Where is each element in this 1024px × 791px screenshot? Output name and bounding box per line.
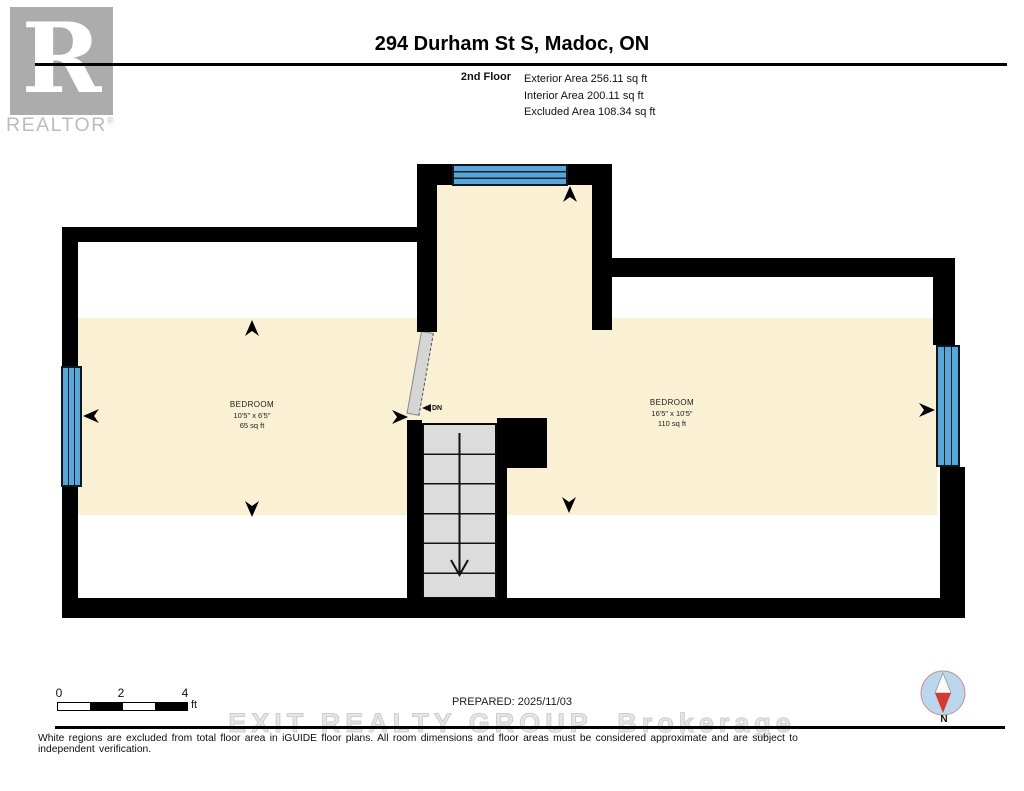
compass-north-label: N	[936, 714, 952, 725]
wall-right-room-top	[608, 258, 950, 277]
wall-left-upper	[62, 242, 78, 367]
wall-right-lower	[940, 467, 965, 598]
arrow-up-left-room	[245, 320, 259, 336]
footer-divider-line	[55, 726, 1005, 729]
wall-left-lower	[62, 487, 78, 598]
window-right	[936, 345, 960, 467]
window-top	[452, 164, 568, 186]
stair-direction-label: DN	[422, 404, 442, 412]
prepared-date: PREPARED: 2025/11/03	[0, 696, 1024, 708]
disclaimer-text: White regions are excluded from total fl…	[38, 733, 823, 755]
room-name: BEDROOM	[602, 398, 742, 409]
room-area: 65 sq ft	[182, 421, 322, 432]
floorplan-sheet: R REALTOR® 294 Durham St S, Madoc, ON 2n…	[0, 0, 1024, 791]
arrow-up-hall	[563, 186, 577, 202]
wall-stair-right	[497, 418, 507, 598]
room-name: BEDROOM	[182, 400, 322, 411]
wall-bottom	[62, 598, 965, 618]
wall-right-upper	[933, 258, 955, 345]
room-label-bedroom-left: BEDROOM 10'5" x 6'5" 65 sq ft	[182, 400, 322, 432]
room-area: 110 sq ft	[602, 419, 742, 430]
room-dimensions: 16'5" x 10'5"	[602, 409, 742, 420]
arrow-left-left-room	[83, 409, 99, 423]
floorplan-drawing: DN BEDROOM 10'5" x 6'5" 65 sq ft	[0, 0, 1024, 791]
wall-left-room-top	[62, 227, 437, 242]
included-area-hall	[437, 185, 593, 331]
arrow-down-left-room	[245, 501, 259, 517]
arrow-down-right-room	[562, 497, 576, 513]
wall-hall-left	[417, 164, 437, 332]
arrow-right-left-room	[392, 410, 408, 424]
room-label-bedroom-right: BEDROOM 16'5" x 10'5" 110 sq ft	[602, 398, 742, 430]
window-left	[61, 366, 82, 487]
dn-arrow-icon	[422, 404, 431, 412]
room-dimensions: 10'5" x 6'5"	[182, 411, 322, 422]
wall-stair-left	[407, 420, 422, 598]
arrow-right-right-room	[919, 403, 935, 417]
wall-hall-right	[592, 164, 612, 330]
stair-down-arrow	[446, 430, 473, 580]
